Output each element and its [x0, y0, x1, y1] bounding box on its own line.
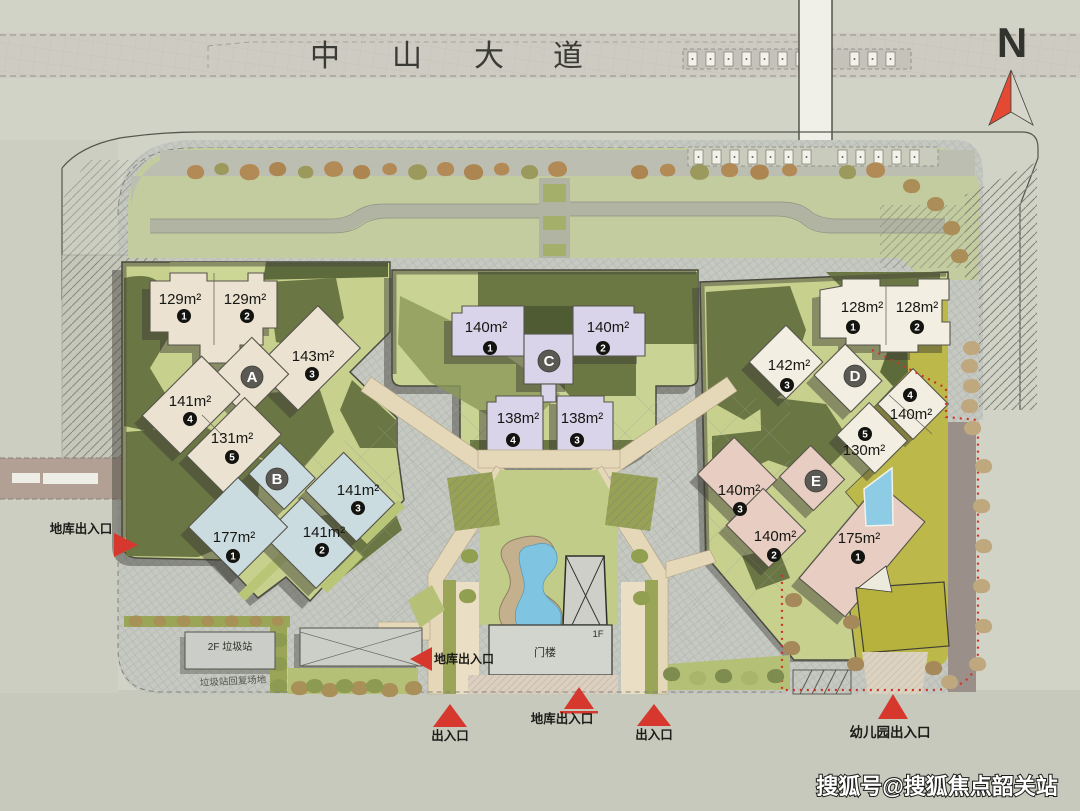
svg-text:地库出入口: 地库出入口: [50, 521, 113, 536]
svg-text:5: 5: [229, 453, 235, 464]
svg-text:138m²: 138m²: [497, 410, 540, 427]
svg-text:搜狐号@搜狐焦点韶关站: 搜狐号@搜狐焦点韶关站: [816, 774, 1057, 799]
svg-text:D: D: [850, 368, 861, 385]
svg-text:3: 3: [737, 505, 743, 516]
svg-text:出入口: 出入口: [635, 727, 673, 742]
svg-text:4: 4: [907, 391, 913, 402]
svg-text:道: 道: [553, 40, 583, 73]
svg-text:1: 1: [850, 323, 856, 334]
svg-text:3: 3: [574, 436, 580, 447]
svg-text:E: E: [811, 473, 821, 490]
svg-text:C: C: [544, 353, 555, 370]
svg-text:140m²: 140m²: [754, 528, 797, 545]
svg-text:地库出入口: 地库出入口: [434, 651, 494, 666]
svg-text:128m²: 128m²: [841, 299, 884, 316]
svg-text:2: 2: [600, 344, 606, 355]
svg-text:138m²: 138m²: [561, 410, 604, 427]
svg-text:140m²: 140m²: [587, 319, 630, 336]
svg-text:175m²: 175m²: [838, 530, 881, 547]
svg-text:140m²: 140m²: [465, 319, 508, 336]
svg-text:140m²: 140m²: [890, 406, 933, 423]
svg-text:N: N: [997, 19, 1027, 66]
svg-text:幼儿园出入口: 幼儿园出入口: [850, 724, 931, 740]
svg-text:中: 中: [310, 40, 340, 73]
svg-text:1: 1: [230, 552, 236, 563]
svg-text:141m²: 141m²: [169, 393, 212, 410]
svg-text:129m²: 129m²: [159, 291, 202, 308]
svg-text:131m²: 131m²: [211, 430, 254, 447]
svg-text:177m²: 177m²: [213, 529, 256, 546]
svg-text:128m²: 128m²: [896, 299, 939, 316]
svg-text:A: A: [247, 369, 258, 386]
svg-text:140m²: 140m²: [718, 482, 761, 499]
svg-text:1: 1: [181, 312, 187, 323]
svg-text:141m²: 141m²: [303, 524, 346, 541]
svg-text:2F 垃圾站: 2F 垃圾站: [208, 640, 252, 653]
svg-text:141m²: 141m²: [337, 482, 380, 499]
svg-text:2: 2: [319, 546, 325, 557]
svg-text:出入口: 出入口: [431, 728, 469, 743]
svg-text:130m²: 130m²: [843, 442, 886, 459]
svg-text:129m²: 129m²: [224, 291, 267, 308]
svg-text:143m²: 143m²: [292, 348, 335, 365]
svg-text:1: 1: [487, 344, 493, 355]
svg-text:142m²: 142m²: [768, 357, 811, 374]
svg-text:2: 2: [914, 323, 920, 334]
svg-text:1F: 1F: [592, 629, 603, 640]
svg-text:3: 3: [309, 370, 315, 381]
svg-text:4: 4: [187, 415, 193, 426]
svg-text:地库出入口: 地库出入口: [531, 711, 594, 726]
svg-text:3: 3: [784, 381, 790, 392]
svg-text:2: 2: [244, 312, 250, 323]
svg-text:山: 山: [392, 40, 422, 73]
svg-text:B: B: [272, 471, 283, 488]
svg-text:1: 1: [855, 553, 861, 564]
svg-text:5: 5: [862, 430, 868, 441]
svg-text:大: 大: [474, 40, 504, 73]
svg-text:4: 4: [510, 436, 516, 447]
svg-text:3: 3: [355, 504, 361, 515]
svg-text:门楼: 门楼: [534, 645, 556, 659]
svg-text:2: 2: [771, 551, 777, 562]
